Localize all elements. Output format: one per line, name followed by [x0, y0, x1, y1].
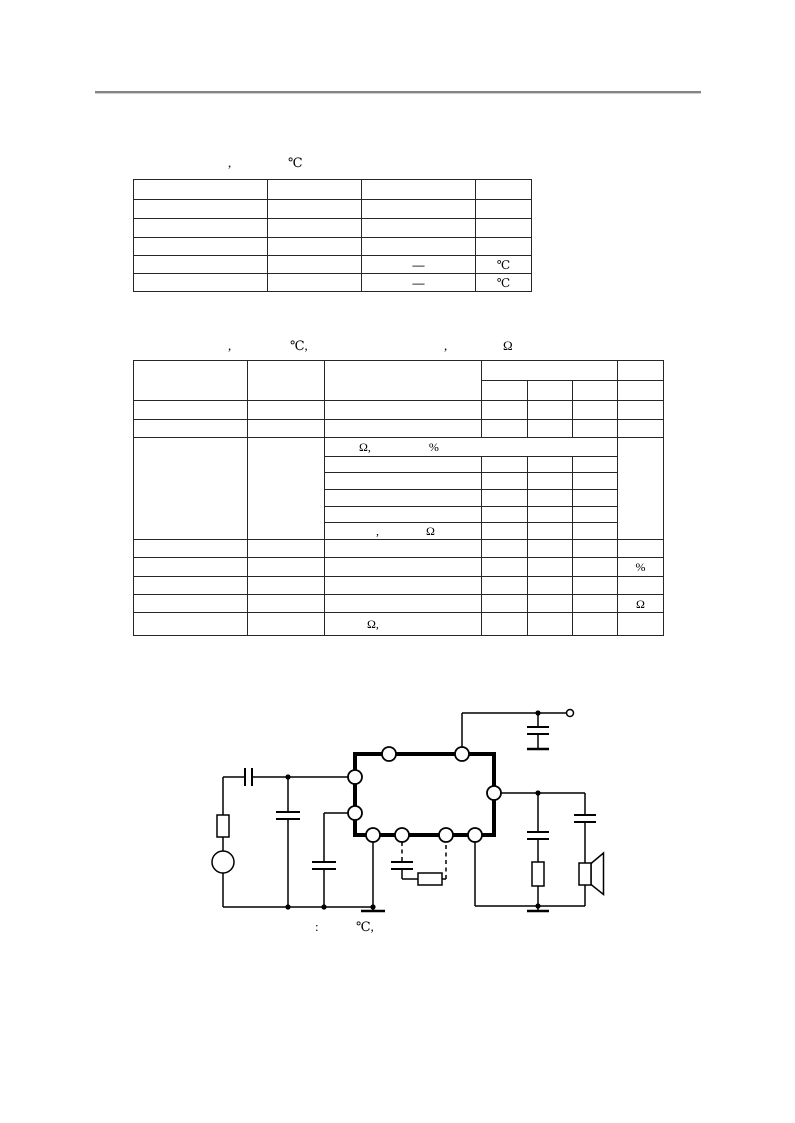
cell — [482, 401, 528, 420]
cell — [248, 438, 325, 540]
table-row — [134, 238, 532, 256]
application-circuit-diagram — [190, 690, 620, 945]
cell — [573, 381, 618, 401]
cell: Ω — [618, 595, 664, 613]
cell — [528, 401, 573, 420]
cell — [268, 180, 362, 200]
output-coupling-capacitor — [574, 815, 596, 822]
cell — [618, 577, 664, 595]
cell — [573, 558, 618, 577]
caption-text: : — [315, 919, 319, 935]
cell — [528, 577, 573, 595]
cell — [528, 523, 573, 540]
cell — [134, 274, 268, 292]
speaker-cone — [591, 853, 604, 895]
cell — [528, 540, 573, 558]
table-row — [134, 401, 664, 420]
ic-pin — [468, 828, 482, 842]
feedback-capacitor — [391, 862, 413, 869]
caption-text: Ω, — [359, 441, 371, 453]
cell — [528, 613, 573, 636]
cell: ℃ — [476, 274, 532, 292]
cell — [528, 558, 573, 577]
ic-pin — [487, 786, 501, 800]
cell — [134, 420, 248, 438]
cell — [325, 401, 482, 420]
cell — [618, 438, 664, 540]
cell — [362, 219, 476, 238]
cell — [248, 420, 325, 438]
cell — [482, 457, 528, 473]
cell — [134, 200, 268, 219]
caption-text: Ω, — [367, 618, 379, 630]
input-filter-capacitor — [276, 812, 300, 819]
ic-pin — [395, 828, 409, 842]
cell — [573, 523, 618, 540]
cell — [362, 180, 476, 200]
cell — [618, 381, 664, 401]
caption-text: Ω — [426, 525, 435, 537]
ic-pin — [366, 828, 380, 842]
table-row: —℃ — [134, 256, 532, 274]
cell — [325, 420, 482, 438]
table-row — [134, 577, 664, 595]
cell — [482, 613, 528, 636]
cell — [482, 540, 528, 558]
cell — [573, 420, 618, 438]
table-row — [134, 361, 664, 381]
cell — [476, 200, 532, 219]
cell — [528, 595, 573, 613]
cell — [482, 490, 528, 507]
cell — [618, 361, 664, 381]
page-top-rule — [95, 91, 701, 94]
table-row — [134, 540, 664, 558]
ic-pin — [348, 806, 362, 820]
cell — [325, 595, 482, 613]
cell — [325, 457, 482, 473]
table-row — [134, 420, 664, 438]
cell: — — [362, 256, 476, 274]
cell — [482, 523, 528, 540]
cell — [248, 595, 325, 613]
cell — [482, 420, 528, 438]
cell — [248, 577, 325, 595]
cell — [134, 361, 248, 401]
cell: — — [362, 274, 476, 292]
bypass-capacitor — [312, 862, 336, 869]
table-row — [134, 200, 532, 219]
cell — [248, 401, 325, 420]
characteristics-table: Ω,% ,Ω % Ω Ω, — [133, 360, 664, 636]
supply-filter-capacitor — [527, 727, 549, 734]
cell: Ω,% — [325, 438, 618, 457]
cell — [573, 595, 618, 613]
cell — [325, 577, 482, 595]
input-coupling-capacitor — [245, 768, 252, 786]
cell — [618, 540, 664, 558]
cell — [268, 256, 362, 274]
table-row: Ω — [134, 595, 664, 613]
cell — [573, 457, 618, 473]
caption-text: , — [228, 338, 231, 354]
cell — [573, 577, 618, 595]
cell — [268, 274, 362, 292]
cell — [528, 420, 573, 438]
cell — [528, 490, 573, 507]
cell — [573, 613, 618, 636]
cell — [268, 238, 362, 256]
table-row: Ω,% — [134, 438, 664, 457]
cell — [325, 473, 482, 490]
cell — [482, 381, 528, 401]
cell — [268, 200, 362, 219]
cell — [248, 613, 325, 636]
cell — [482, 361, 618, 381]
source-resistor — [217, 815, 229, 837]
cell — [134, 401, 248, 420]
cell — [362, 200, 476, 219]
table-row: —℃ — [134, 274, 532, 292]
cell — [482, 558, 528, 577]
caption-text: ℃, — [290, 338, 308, 354]
cell — [325, 540, 482, 558]
cell — [134, 595, 248, 613]
caption-text: Ω — [503, 338, 513, 354]
cell — [134, 558, 248, 577]
cell — [325, 490, 482, 507]
cell — [248, 558, 325, 577]
cell: Ω, — [325, 613, 482, 636]
cell — [482, 507, 528, 523]
cell — [573, 490, 618, 507]
cell: ℃ — [476, 256, 532, 274]
caption-text: , — [376, 525, 379, 537]
table1-caption: , ℃ — [133, 155, 531, 172]
cell — [325, 361, 482, 401]
ic-pin — [348, 770, 362, 784]
table-row: % — [134, 558, 664, 577]
caption-text: ℃, — [356, 919, 374, 935]
cell — [528, 507, 573, 523]
cell — [134, 577, 248, 595]
ratings-table: —℃ —℃ — [133, 179, 532, 292]
table-row — [134, 219, 532, 238]
speaker — [579, 853, 604, 895]
cell — [248, 361, 325, 401]
cell — [573, 473, 618, 490]
cell — [528, 457, 573, 473]
cell — [134, 438, 248, 540]
cell — [248, 540, 325, 558]
cell: % — [618, 558, 664, 577]
cell — [528, 473, 573, 490]
caption-text: ℃ — [288, 155, 303, 171]
cell — [134, 540, 248, 558]
table-row: Ω, — [134, 613, 664, 636]
table2-caption: , ℃, , Ω — [133, 338, 663, 355]
cell — [482, 577, 528, 595]
cell — [134, 219, 268, 238]
speaker-driver — [579, 863, 591, 885]
cell — [134, 613, 248, 636]
supply-terminal — [567, 710, 574, 717]
caption-text: % — [429, 441, 439, 453]
ic-pin — [439, 828, 453, 842]
cell — [134, 238, 268, 256]
cell — [618, 420, 664, 438]
signal-source — [212, 851, 234, 873]
cell — [268, 219, 362, 238]
datasheet-page: , ℃ —℃ —℃ , ℃, , Ω Ω,% ,Ω % Ω Ω, — [0, 0, 795, 1123]
cell — [573, 401, 618, 420]
cell — [476, 180, 532, 200]
table-row — [134, 180, 532, 200]
cell — [476, 219, 532, 238]
ic-pin — [382, 747, 396, 761]
ic-pin — [455, 747, 469, 761]
feedback-resistor — [418, 873, 442, 885]
cell — [573, 507, 618, 523]
cell — [476, 238, 532, 256]
junction-dot — [285, 904, 290, 909]
cell — [573, 540, 618, 558]
cell — [325, 558, 482, 577]
cell — [325, 507, 482, 523]
circuit-note: : ℃, — [280, 919, 480, 936]
cell — [134, 180, 268, 200]
ic-body — [355, 754, 494, 835]
cell — [482, 473, 528, 490]
cell — [528, 381, 573, 401]
zobel-resistor — [532, 862, 544, 886]
cell — [618, 613, 664, 636]
cell — [618, 401, 664, 420]
cell — [134, 256, 268, 274]
caption-text: , — [228, 155, 231, 171]
cell — [362, 238, 476, 256]
caption-text: , — [444, 338, 447, 354]
zobel-capacitor — [527, 832, 549, 839]
junction-dot — [321, 904, 326, 909]
cell: ,Ω — [325, 523, 482, 540]
cell — [482, 595, 528, 613]
